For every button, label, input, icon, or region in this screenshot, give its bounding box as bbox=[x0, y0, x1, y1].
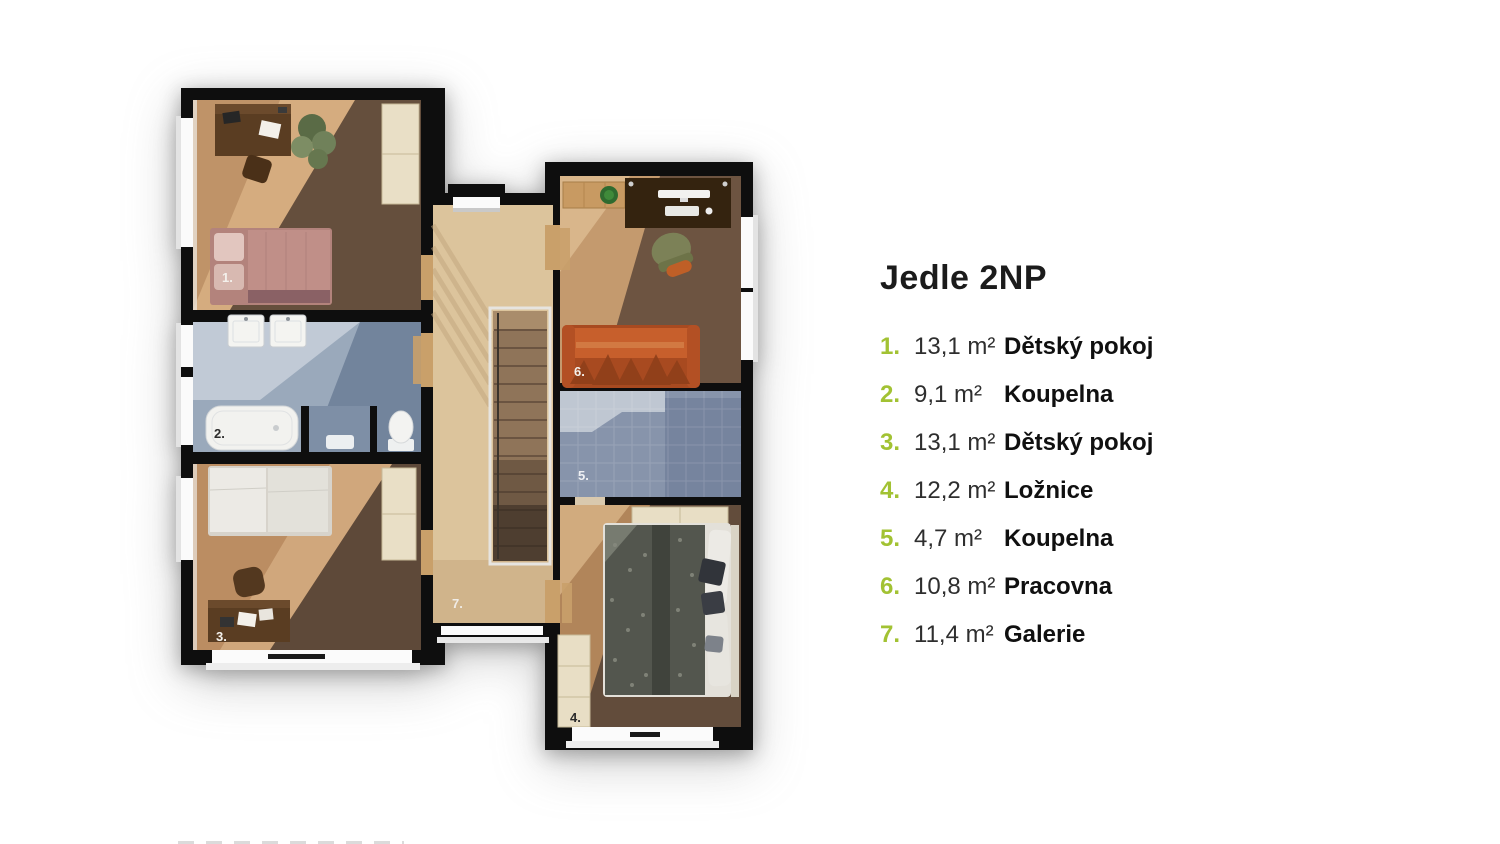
list-item: 6. 10,8 m² Pracovna bbox=[880, 563, 1153, 611]
room-7-galerie: 7. bbox=[433, 205, 553, 623]
room-number: 1. bbox=[880, 333, 914, 361]
room-area: 11,4 m² bbox=[914, 621, 1004, 649]
list-item: 1. 13,1 m² Dětský pokoj bbox=[880, 323, 1153, 371]
partition-wall bbox=[301, 406, 309, 452]
room-4-loznice: 4. bbox=[558, 505, 741, 727]
window bbox=[181, 325, 193, 445]
mouse bbox=[706, 208, 713, 215]
room-label-4: 4. bbox=[570, 710, 581, 725]
room-name: Koupelna bbox=[1004, 381, 1113, 409]
room-1-detsky-pokoj: 1. bbox=[193, 100, 421, 310]
room-area: 10,8 m² bbox=[914, 573, 1004, 601]
room-label-3: 3. bbox=[216, 629, 227, 644]
room-label-7: 7. bbox=[452, 596, 463, 611]
staircase bbox=[490, 308, 550, 564]
room-number: 5. bbox=[880, 525, 914, 553]
legend: Jedle 2NP 1. 13,1 m² Dětský pokoj 2. 9,1… bbox=[880, 258, 1153, 659]
door-room3 bbox=[421, 530, 433, 575]
room-2-koupelna: 2. bbox=[193, 315, 423, 452]
room-label-6: 6. bbox=[574, 364, 585, 379]
wardrobe bbox=[382, 468, 416, 560]
toilet bbox=[388, 411, 414, 451]
list-item: 7. 11,4 m² Galerie bbox=[880, 611, 1153, 659]
room-name: Dětský pokoj bbox=[1004, 429, 1153, 457]
room-number: 7. bbox=[880, 621, 914, 649]
room-label-1: 1. bbox=[222, 270, 233, 285]
bed bbox=[208, 466, 332, 536]
partition-wall bbox=[370, 406, 377, 452]
bed bbox=[603, 523, 739, 697]
duvet bbox=[210, 468, 266, 532]
room-name: Ložnice bbox=[1004, 477, 1093, 505]
headboard bbox=[731, 525, 739, 697]
door-room4 bbox=[545, 580, 560, 623]
room-name: Koupelna bbox=[1004, 525, 1113, 553]
sink bbox=[228, 315, 264, 347]
room-name: Dětský pokoj bbox=[1004, 333, 1153, 361]
room-area: 9,1 m² bbox=[914, 381, 1004, 409]
laptop bbox=[222, 111, 240, 124]
floorplan: 1. 2. bbox=[160, 60, 780, 780]
window bbox=[441, 626, 543, 635]
room-name: Galerie bbox=[1004, 621, 1085, 649]
pillow bbox=[214, 233, 244, 261]
room-area: 13,1 m² bbox=[914, 333, 1004, 361]
room-area: 13,1 m² bbox=[914, 429, 1004, 457]
floorplan-svg: 1. 2. bbox=[160, 60, 780, 780]
door-room1 bbox=[421, 255, 433, 300]
wardrobe bbox=[382, 104, 419, 204]
cushion bbox=[701, 591, 726, 616]
window bbox=[181, 478, 193, 560]
bed bbox=[210, 228, 332, 305]
room-area: 12,2 m² bbox=[914, 477, 1004, 505]
room-label-5: 5. bbox=[578, 468, 589, 483]
desk bbox=[215, 104, 291, 156]
list-item: 4. 12,2 m² Ložnice bbox=[880, 467, 1153, 515]
door-room5 bbox=[575, 497, 605, 505]
sink bbox=[270, 315, 306, 347]
door-room6 bbox=[545, 225, 560, 270]
keyboard bbox=[665, 206, 699, 216]
cushion bbox=[704, 635, 724, 653]
room-label-2: 2. bbox=[214, 426, 225, 441]
monitor bbox=[658, 190, 710, 198]
list-item: 5. 4,7 m² Koupelna bbox=[880, 515, 1153, 563]
door-room2 bbox=[421, 333, 433, 387]
room-list: 1. 13,1 m² Dětský pokoj 2. 9,1 m² Koupel… bbox=[880, 323, 1153, 659]
room-6-pracovna: 6. bbox=[560, 176, 741, 388]
list-item: 3. 13,1 m² Dětský pokoj bbox=[880, 419, 1153, 467]
plant bbox=[600, 186, 618, 204]
room-5-koupelna: 5. bbox=[560, 391, 741, 497]
page-title: Jedle 2NP bbox=[880, 258, 1153, 298]
room-area: 4,7 m² bbox=[914, 525, 1004, 553]
window bbox=[453, 197, 500, 208]
window bbox=[181, 118, 193, 247]
door-leaf bbox=[562, 583, 572, 623]
desk bbox=[625, 178, 731, 228]
room-number: 4. bbox=[880, 477, 914, 505]
room-3-detsky-pokoj: 3. bbox=[193, 464, 421, 650]
wall-face bbox=[193, 100, 197, 310]
room-name: Pracovna bbox=[1004, 573, 1112, 601]
list-item: 2. 9,1 m² Koupelna bbox=[880, 371, 1153, 419]
room-number: 6. bbox=[880, 573, 914, 601]
papers bbox=[237, 612, 257, 627]
room-number: 2. bbox=[880, 381, 914, 409]
door-leaf bbox=[560, 228, 570, 270]
duvet bbox=[268, 468, 328, 532]
room-number: 3. bbox=[880, 429, 914, 457]
cushion bbox=[698, 558, 726, 586]
